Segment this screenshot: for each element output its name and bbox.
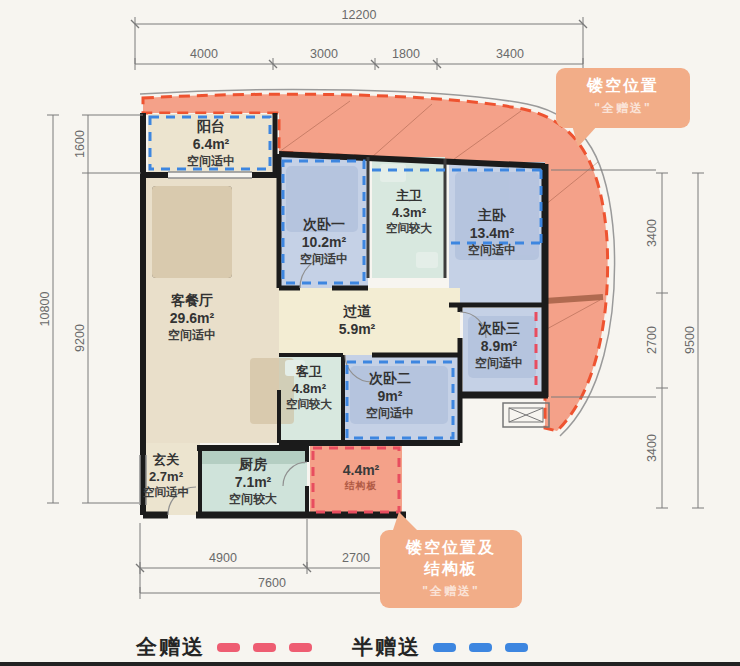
room-label-balcony: 阳台 6.4m² 空间适中 xyxy=(187,117,235,170)
room-label-bedroom1: 次卧一 10.2m² 空间适中 xyxy=(300,215,348,268)
room-label-master-bedroom: 主卧 13.4m² 空间适中 xyxy=(468,206,516,259)
room-label-bedroom3: 次卧三 8.9m² 空间适中 xyxy=(475,319,523,372)
room-label-structural-slab: 4.4m² 结构板 xyxy=(343,461,380,493)
legend-half-gift-label: 半赠送 xyxy=(352,633,421,661)
room-label-kitchen: 厨房 7.1m² 空间较大 xyxy=(229,455,277,508)
dim-top-total: 12200 xyxy=(342,8,377,22)
dim-top-seg-4: 3400 xyxy=(496,47,524,61)
room-label-hallway: 过道 5.9m² xyxy=(339,302,376,339)
legend-full-gift-dashes xyxy=(217,643,312,652)
dim-right-seg-1: 3400 xyxy=(645,219,659,247)
dim-bottom-seg-1: 4900 xyxy=(209,551,237,565)
ac-unit-icon xyxy=(503,403,549,427)
legend-half-gift-dashes xyxy=(433,643,528,652)
dim-left-seg-1: 1600 xyxy=(73,130,87,158)
room-label-bedroom2: 次卧二 9m² 空间适中 xyxy=(366,369,414,422)
callout-hollow-bottom: 镂空位置及 结构板 "全赠送" xyxy=(380,530,522,608)
dim-top-seg-3: 1800 xyxy=(392,47,420,61)
room-label-master-bath: 主卫 4.3m² 空间较大 xyxy=(386,187,432,236)
room-label-living-dining: 客餐厅 29.6m² 空间适中 xyxy=(168,291,216,344)
dim-right-seg-2: 2700 xyxy=(645,326,659,354)
callout-hollow-top: 镂空位置 "全赠送" xyxy=(556,68,690,128)
room-label-guest-bath: 客卫 4.8m² 空间较大 xyxy=(286,363,332,412)
dim-top-seg-1: 4000 xyxy=(190,47,218,61)
dim-right-seg-3: 3400 xyxy=(645,434,659,462)
slab-edge-line xyxy=(545,297,603,301)
floorplan-canvas: 12200 4000 3000 1800 3400 10800 1600 920… xyxy=(0,0,740,666)
bottom-edge-bar xyxy=(0,662,740,666)
dim-left-total: 10800 xyxy=(38,292,52,327)
dim-top-seg-2: 3000 xyxy=(310,47,338,61)
dim-left-seg-2: 9200 xyxy=(73,324,87,352)
dim-bottom-total: 7600 xyxy=(258,576,286,590)
room-label-foyer: 玄关 2.7m² 空间适中 xyxy=(143,451,189,500)
dim-bottom-seg-2: 2700 xyxy=(342,551,370,565)
dim-right-total: 9500 xyxy=(683,326,697,354)
legend: 全赠送 半赠送 xyxy=(136,633,556,661)
legend-full-gift-label: 全赠送 xyxy=(136,633,205,661)
